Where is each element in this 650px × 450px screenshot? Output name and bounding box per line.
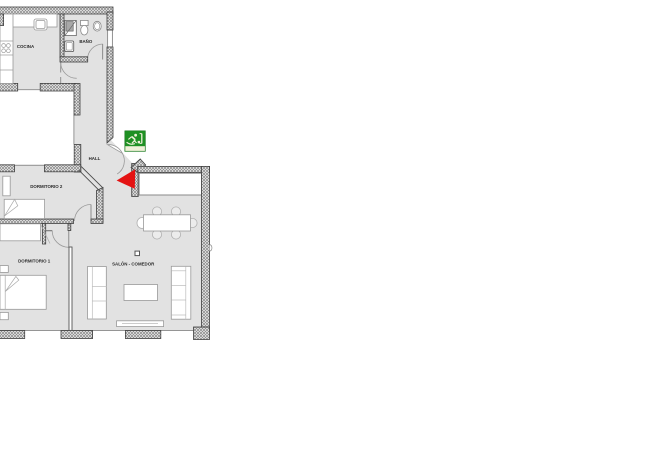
svg-text:DORMITORIO 2: DORMITORIO 2 <box>30 184 63 189</box>
svg-text:COCINA: COCINA <box>17 44 35 49</box>
svg-text:SALÓN - COMEDOR: SALÓN - COMEDOR <box>112 262 155 267</box>
svg-text:BAÑO: BAÑO <box>79 39 93 44</box>
svg-text:HALL: HALL <box>89 156 101 161</box>
svg-text:DORMITORIO 1: DORMITORIO 1 <box>18 259 51 264</box>
